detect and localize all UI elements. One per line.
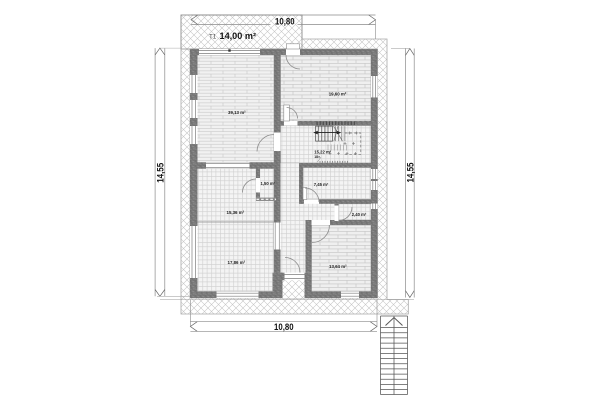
svg-text:14,55: 14,55 <box>405 162 415 182</box>
svg-text:14,55: 14,55 <box>156 163 166 183</box>
svg-text:39,13 m²: 39,13 m² <box>228 110 246 115</box>
svg-text:15,36 m²: 15,36 m² <box>227 210 245 215</box>
svg-text:1,50 m²: 1,50 m² <box>261 181 276 186</box>
svg-text:14,00 m²: 14,00 m² <box>220 31 257 41</box>
svg-text:10,80: 10,80 <box>275 16 295 26</box>
svg-text:10,80: 10,80 <box>274 322 294 332</box>
svg-text:7,45 m²: 7,45 m² <box>314 182 329 187</box>
svg-text:2,40 m²: 2,40 m² <box>352 212 367 217</box>
svg-text:18×: 18× <box>314 155 320 159</box>
svg-text:13,64 m²: 13,64 m² <box>329 264 347 269</box>
svg-text:17,86 m²: 17,86 m² <box>228 260 246 265</box>
svg-text:15,22 m²: 15,22 m² <box>314 149 331 154</box>
svg-text:19,60 m²: 19,60 m² <box>329 92 347 97</box>
svg-text:T1: T1 <box>209 34 217 41</box>
